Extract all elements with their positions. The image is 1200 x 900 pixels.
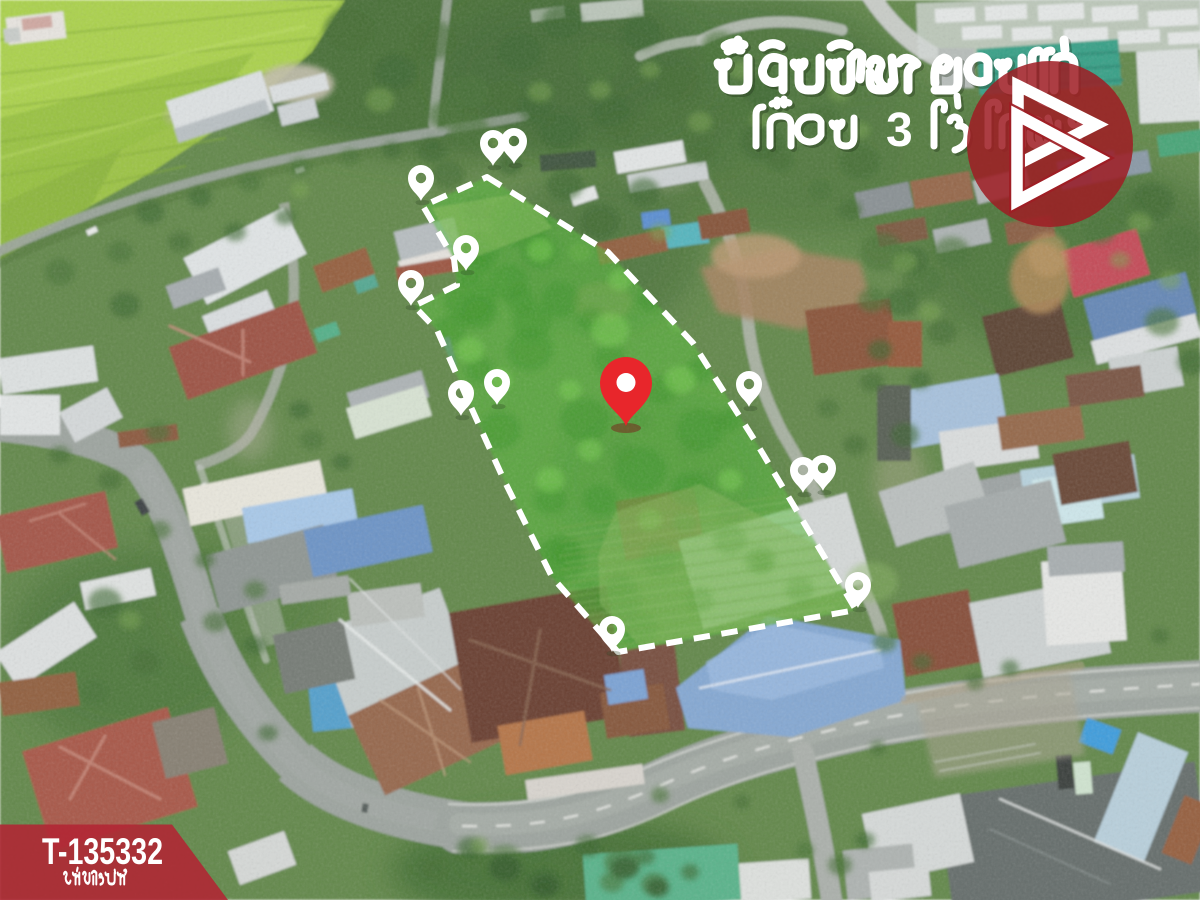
svg-text:3: 3: [886, 104, 913, 157]
svg-text:T-135332: T-135332: [42, 831, 163, 872]
